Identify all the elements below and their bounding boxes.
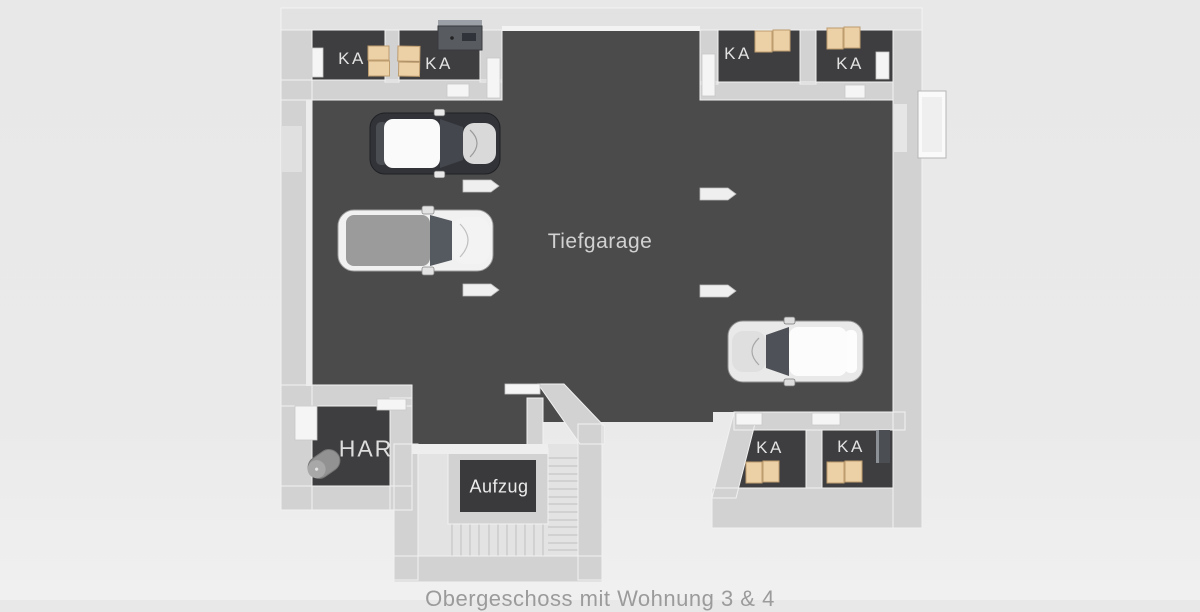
- garage-label: Tiefgarage: [548, 230, 653, 254]
- storage-room-label: KA: [724, 44, 752, 64]
- landing-edge: [412, 444, 548, 454]
- door-recess: [894, 104, 907, 152]
- elevator-label: Aufzug: [469, 477, 528, 498]
- storage-room-label: KA: [756, 438, 784, 458]
- utility-room-label: HAR: [339, 436, 394, 463]
- wall-highlight: [502, 26, 700, 31]
- exterior-door-icon: [918, 91, 946, 158]
- door-recess: [282, 126, 302, 172]
- floorplan-rendering: [0, 0, 1200, 600]
- storage-room-label: KA: [837, 437, 865, 457]
- cabinet-icon: [438, 20, 482, 50]
- storage-room-label: KA: [425, 54, 453, 74]
- storage-room-label: KA: [836, 54, 864, 74]
- cabinet-icon: [876, 430, 890, 463]
- floor-caption: Obergeschoss mit Wohnung 3 & 4: [425, 586, 775, 612]
- car-icon: [338, 206, 493, 275]
- car-icon: [728, 317, 863, 386]
- car-icon: [370, 109, 500, 178]
- wall-highlight: [306, 100, 312, 386]
- storage-room-label: KA: [338, 49, 366, 69]
- floorplan-canvas: KA KA KA KA KA KA Tiefgarage HAR Aufzug …: [0, 0, 1200, 600]
